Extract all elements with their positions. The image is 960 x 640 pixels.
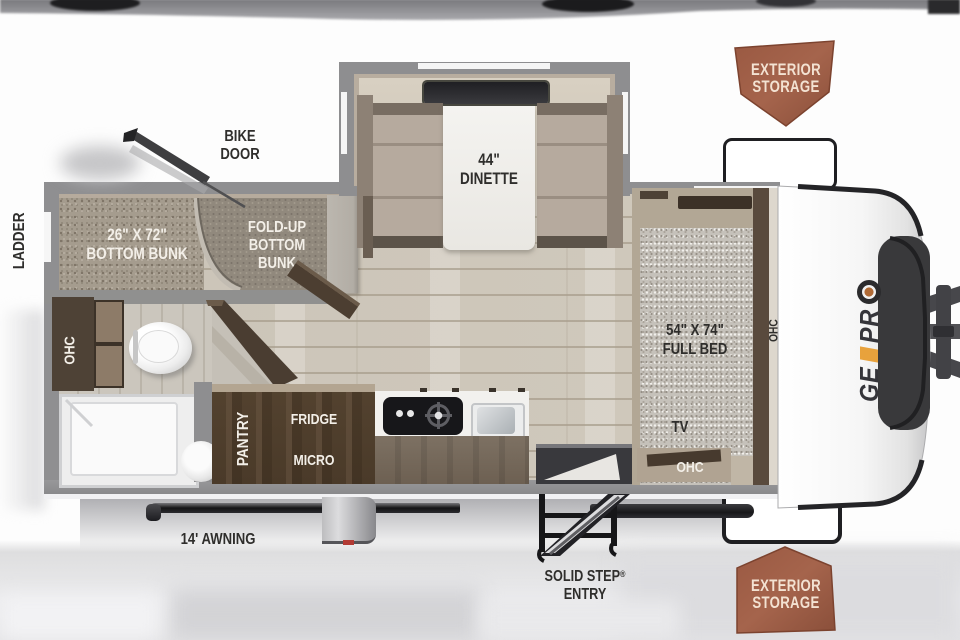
svg-text:STORAGE: STORAGE	[752, 78, 819, 97]
svg-text:EXTERIOR: EXTERIOR	[751, 577, 821, 596]
svg-text:EXTERIOR: EXTERIOR	[751, 61, 821, 80]
svg-text:STORAGE: STORAGE	[752, 594, 819, 613]
